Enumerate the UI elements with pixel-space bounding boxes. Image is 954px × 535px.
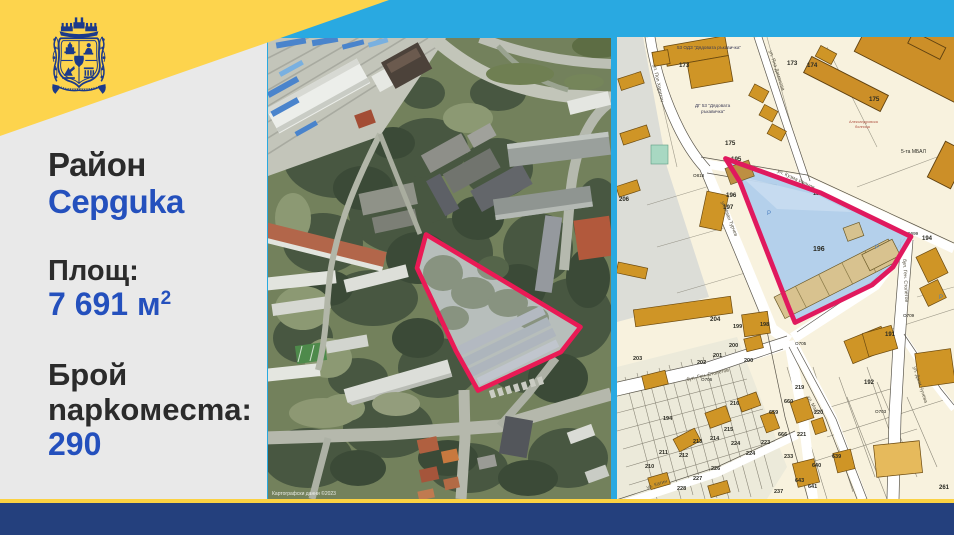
svg-text:214: 214 (710, 436, 720, 442)
svg-text:659: 659 (769, 410, 778, 416)
svg-text:199: 199 (733, 324, 742, 330)
svg-text:641: 641 (808, 484, 817, 490)
svg-text:216: 216 (730, 401, 739, 407)
svg-text:200: 200 (729, 343, 738, 349)
svg-text:198: 198 (760, 322, 769, 328)
svg-text:194: 194 (922, 236, 933, 242)
svg-text:болница: болница (855, 125, 871, 129)
svg-text:194: 194 (663, 416, 673, 422)
svg-text:O818: O818 (693, 173, 705, 178)
svg-text:Картографски данни ©2023: Картографски данни ©2023 (272, 490, 336, 497)
svg-text:639: 639 (832, 454, 841, 460)
svg-text:224: 224 (731, 441, 741, 447)
svg-text:221: 221 (797, 432, 806, 438)
svg-text:O709: O709 (903, 313, 915, 318)
svg-text:173: 173 (679, 62, 690, 69)
svg-text:223: 223 (761, 440, 770, 446)
svg-text:53 ОДЗ "Дядовата ръкавичка": 53 ОДЗ "Дядовата ръкавичка" (677, 45, 741, 50)
svg-text:219: 219 (795, 385, 804, 391)
svg-text:200: 200 (744, 358, 753, 364)
svg-text:212: 212 (679, 453, 688, 459)
svg-text:192: 192 (864, 380, 875, 386)
svg-text:213: 213 (693, 439, 702, 445)
svg-text:191: 191 (885, 332, 896, 338)
svg-text:O705: O705 (795, 341, 807, 346)
svg-text:228: 228 (677, 486, 686, 492)
svg-text:5-та МБАЛ: 5-та МБАЛ (901, 149, 926, 155)
svg-text:175: 175 (725, 140, 736, 147)
svg-text:196: 196 (726, 192, 737, 199)
svg-text:640: 640 (812, 463, 821, 469)
svg-text:261: 261 (939, 485, 950, 491)
svg-text:203: 203 (633, 356, 642, 362)
svg-text:ДГ 53 "Дядовата: ДГ 53 "Дядовата (695, 103, 731, 108)
svg-text:P: P (767, 211, 771, 217)
svg-text:P: P (939, 295, 943, 301)
svg-text:666: 666 (778, 432, 787, 438)
svg-text:202: 202 (697, 360, 706, 366)
svg-text:660: 660 (784, 399, 793, 405)
svg-text:P: P (875, 245, 879, 251)
svg-text:226: 226 (711, 466, 720, 472)
svg-text:173: 173 (787, 60, 798, 67)
svg-text:643: 643 (795, 478, 804, 484)
svg-text:204: 204 (710, 316, 721, 323)
svg-text:215: 215 (724, 427, 733, 433)
svg-text:224: 224 (746, 451, 756, 457)
svg-text:233: 233 (784, 454, 793, 460)
svg-text:206: 206 (619, 197, 630, 203)
svg-text:O703: O703 (875, 409, 887, 414)
svg-text:196: 196 (813, 246, 825, 253)
svg-text:ръкавичка": ръкавичка" (701, 109, 725, 114)
svg-text:227: 227 (693, 476, 702, 482)
svg-text:211: 211 (659, 450, 668, 456)
svg-text:175: 175 (869, 96, 880, 103)
svg-text:201: 201 (713, 353, 722, 359)
svg-text:174: 174 (807, 62, 818, 69)
svg-text:210: 210 (645, 464, 654, 470)
svg-text:Александровска: Александровска (849, 120, 879, 124)
svg-text:237: 237 (774, 489, 783, 495)
